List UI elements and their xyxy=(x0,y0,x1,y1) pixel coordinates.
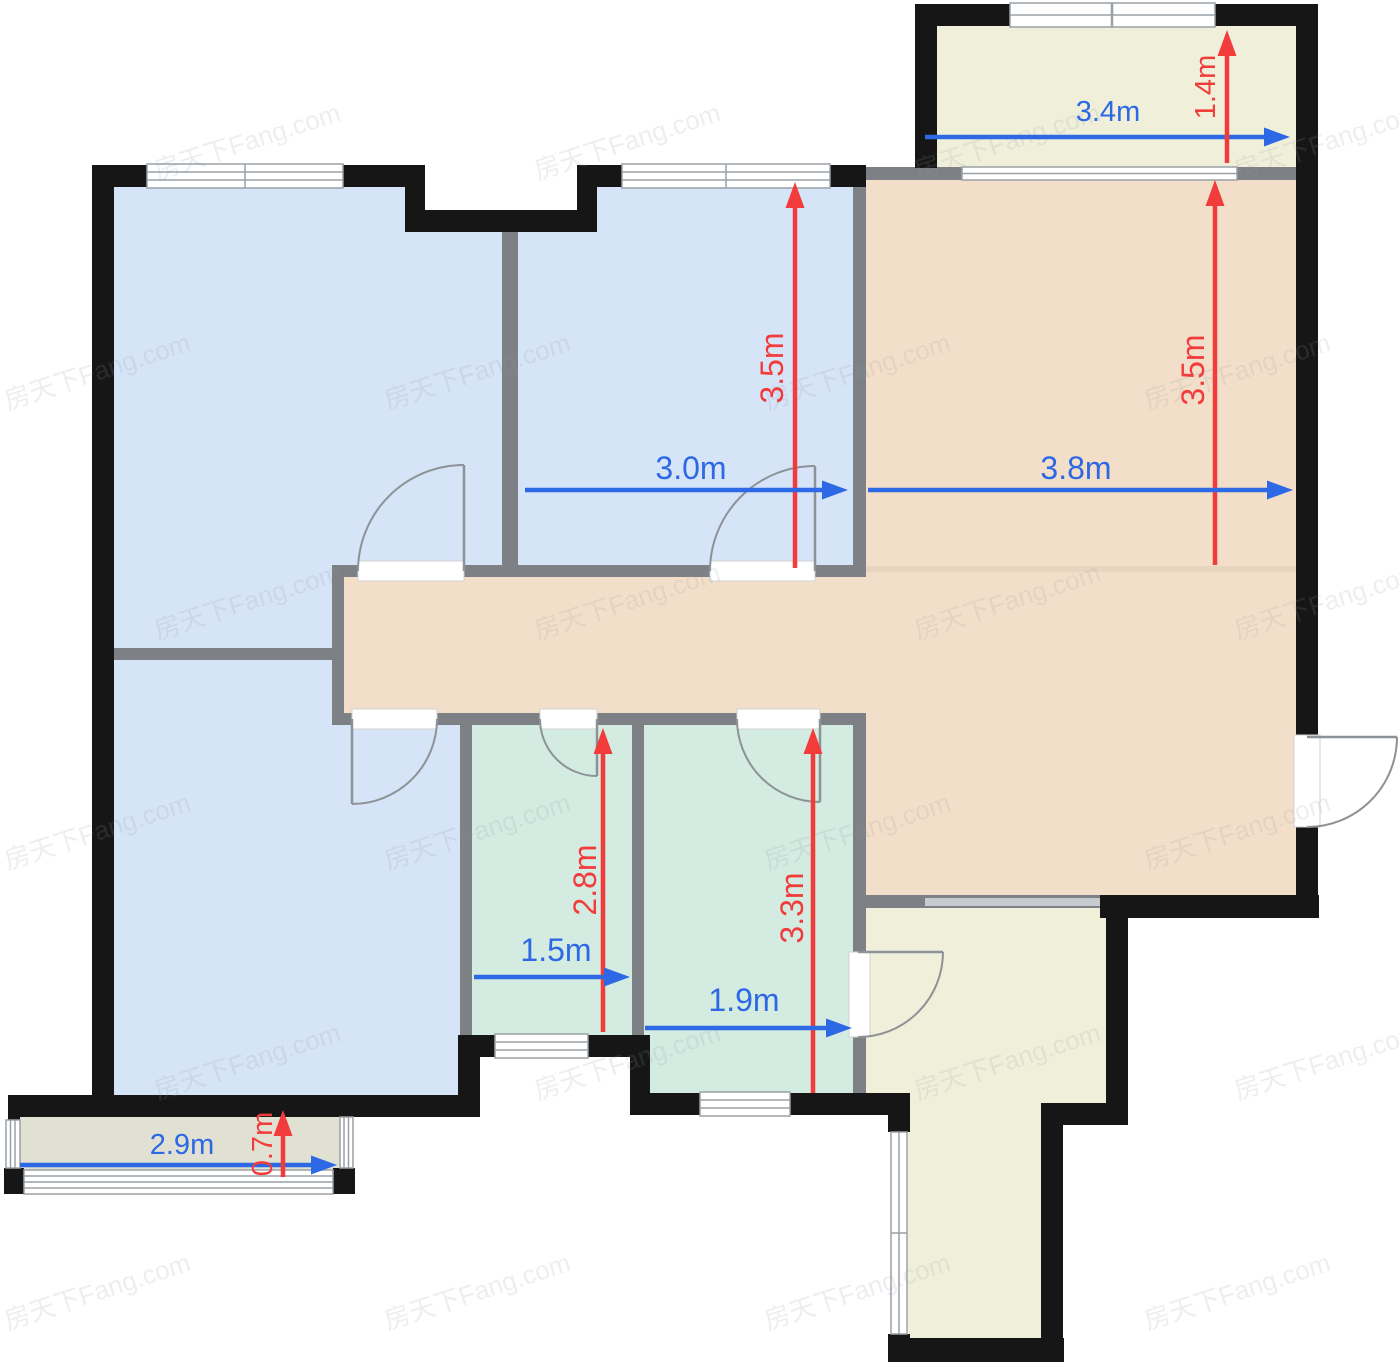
dimension-label-balcony-bottom-depth: 0.7m xyxy=(247,1112,279,1176)
watermark-text: 房天下Fang.com xyxy=(1141,1247,1334,1335)
window-bath-right xyxy=(700,1092,790,1116)
wall-baths-divider xyxy=(632,713,644,1040)
dimension-label-balcony-top-width: 3.4m xyxy=(1076,96,1140,128)
wall-left-rooms-divider xyxy=(92,648,338,660)
wall-balcony-bottom-corner-right xyxy=(333,1168,355,1194)
window-balcony-bottom-right xyxy=(340,1117,353,1168)
room-bath-left xyxy=(472,725,632,1037)
dimension-label-living-width: 3.8m xyxy=(1040,450,1111,486)
wall-bedroom-divider-vertical xyxy=(502,215,518,565)
wall-balcony-bottom-left-drop xyxy=(8,1095,20,1122)
wall-bottom-bedroom xyxy=(8,1095,480,1117)
dimension-label-bedroom-mid-depth: 3.5m xyxy=(754,332,790,403)
dimension-label-balcony-bottom-width: 2.9m xyxy=(150,1129,214,1161)
floor-plan: 房天下Fang.com房天下Fang.com房天下Fang.com房天下Fang… xyxy=(0,0,1400,1367)
window-bedroom-middle xyxy=(622,164,830,188)
wall-left xyxy=(92,165,114,1117)
wall-balcony-top-left xyxy=(915,4,937,168)
dimension-label-bath-right-depth: 3.3m xyxy=(774,872,810,943)
wall-living-bottom xyxy=(1100,895,1319,918)
window-balcony-bottom xyxy=(24,1170,333,1194)
dimension-label-bath-left-depth: 2.8m xyxy=(567,844,603,915)
wall-bedroom-bath-divider xyxy=(460,713,472,1040)
watermark-text: 房天下Fang.com xyxy=(381,1247,574,1335)
wall-right-lower xyxy=(1296,827,1318,918)
dimension-label-bedroom-mid-width: 3.0m xyxy=(655,450,726,486)
wall-kitchen-right-lower xyxy=(1041,1103,1063,1362)
wall-kitchen-bottom xyxy=(888,1338,1064,1362)
watermark-text: 房天下Fang.com xyxy=(1,1247,194,1335)
window-balcony-bottom-left xyxy=(6,1120,20,1168)
wall-kitchen-right-upper xyxy=(1106,903,1128,1125)
wall-living-kitchen-passthrough xyxy=(925,898,1100,906)
window-bath-left xyxy=(495,1034,588,1058)
window-balcony-top xyxy=(1010,3,1215,27)
dimension-label-bath-left-width: 1.5m xyxy=(520,932,591,968)
wall-notch-bottom xyxy=(405,210,597,232)
wall-balcony-bottom-corner-left xyxy=(4,1168,24,1194)
dimension-label-living-depth: 3.5m xyxy=(1175,334,1211,405)
floor-plan-page: 房天下Fang.com房天下Fang.com房天下Fang.com房天下Fang… xyxy=(0,0,1400,1367)
wall-kitchen-left-upper xyxy=(888,1093,910,1132)
watermark-text: 房天下Fang.com xyxy=(1231,1017,1400,1105)
dimension-label-bath-right-width: 1.9m xyxy=(708,982,779,1018)
window-kitchen-left xyxy=(891,1132,907,1334)
window-living-top xyxy=(962,167,1237,180)
dimension-label-balcony-top-depth: 1.4m xyxy=(1190,55,1222,119)
